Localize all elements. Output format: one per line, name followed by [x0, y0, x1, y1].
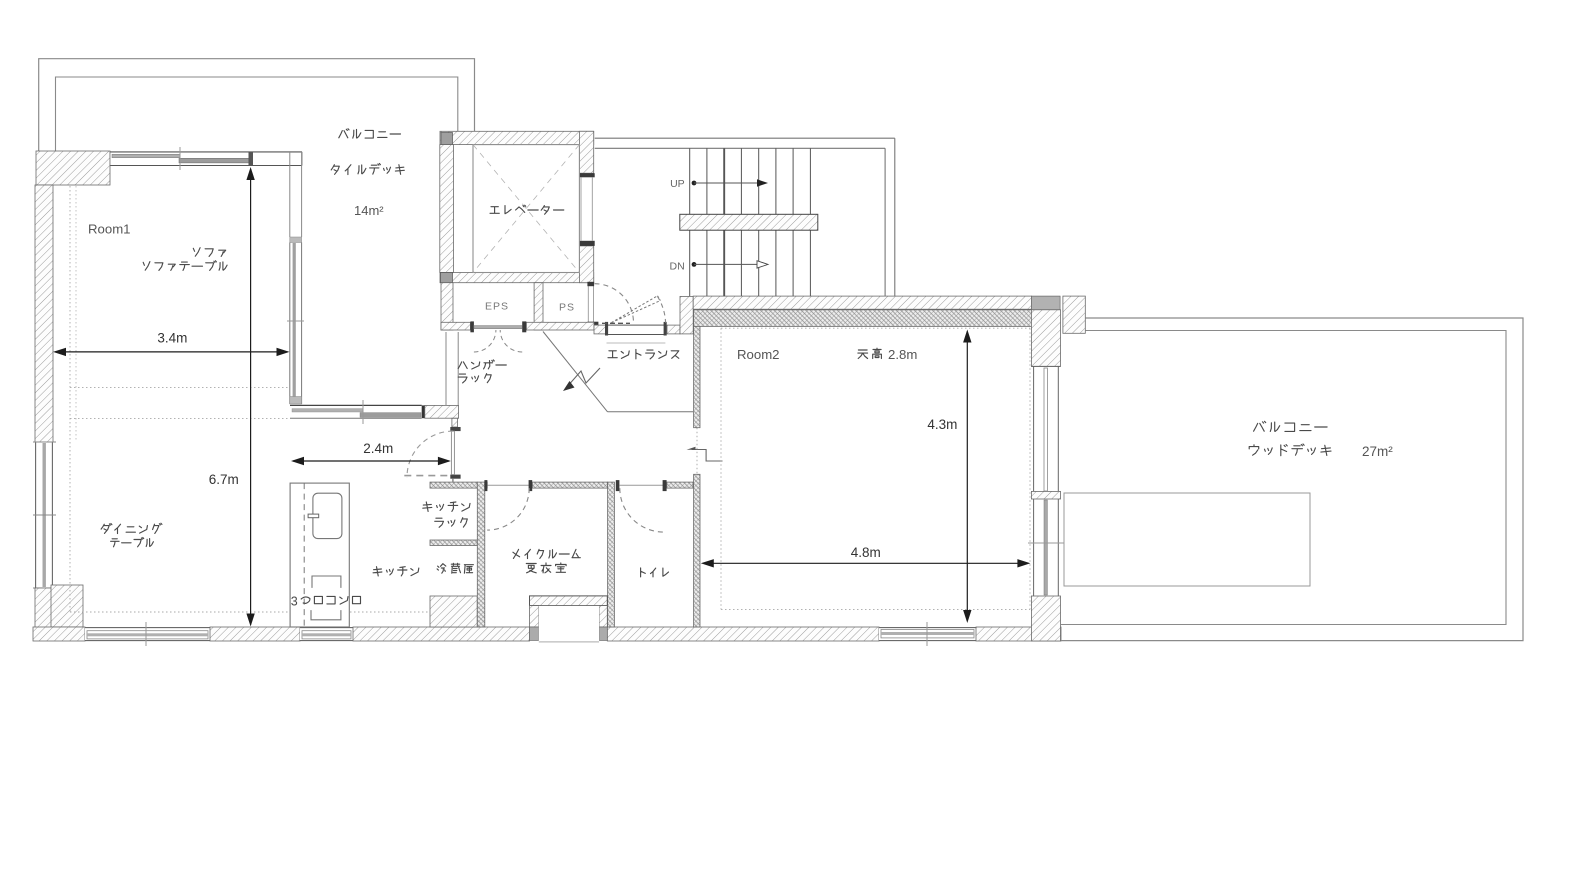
svg-text:UP: UP: [670, 178, 685, 190]
svg-text:PS: PS: [559, 302, 575, 314]
svg-text:2.4m: 2.4m: [363, 441, 393, 456]
svg-text:4.3m: 4.3m: [927, 417, 957, 432]
svg-text:6.7m: 6.7m: [209, 472, 239, 487]
svg-text:14m²: 14m²: [354, 203, 384, 218]
svg-text:3.4m: 3.4m: [157, 331, 187, 346]
svg-text:2.8m: 2.8m: [888, 347, 917, 362]
svg-text:EPS: EPS: [485, 301, 509, 313]
svg-text:Room2: Room2: [737, 347, 780, 362]
svg-text:Room1: Room1: [88, 222, 131, 237]
svg-text:DN: DN: [670, 261, 685, 273]
svg-text:3: 3: [291, 594, 298, 608]
svg-text:4.8m: 4.8m: [851, 545, 881, 560]
svg-text:27m²: 27m²: [1362, 444, 1393, 459]
